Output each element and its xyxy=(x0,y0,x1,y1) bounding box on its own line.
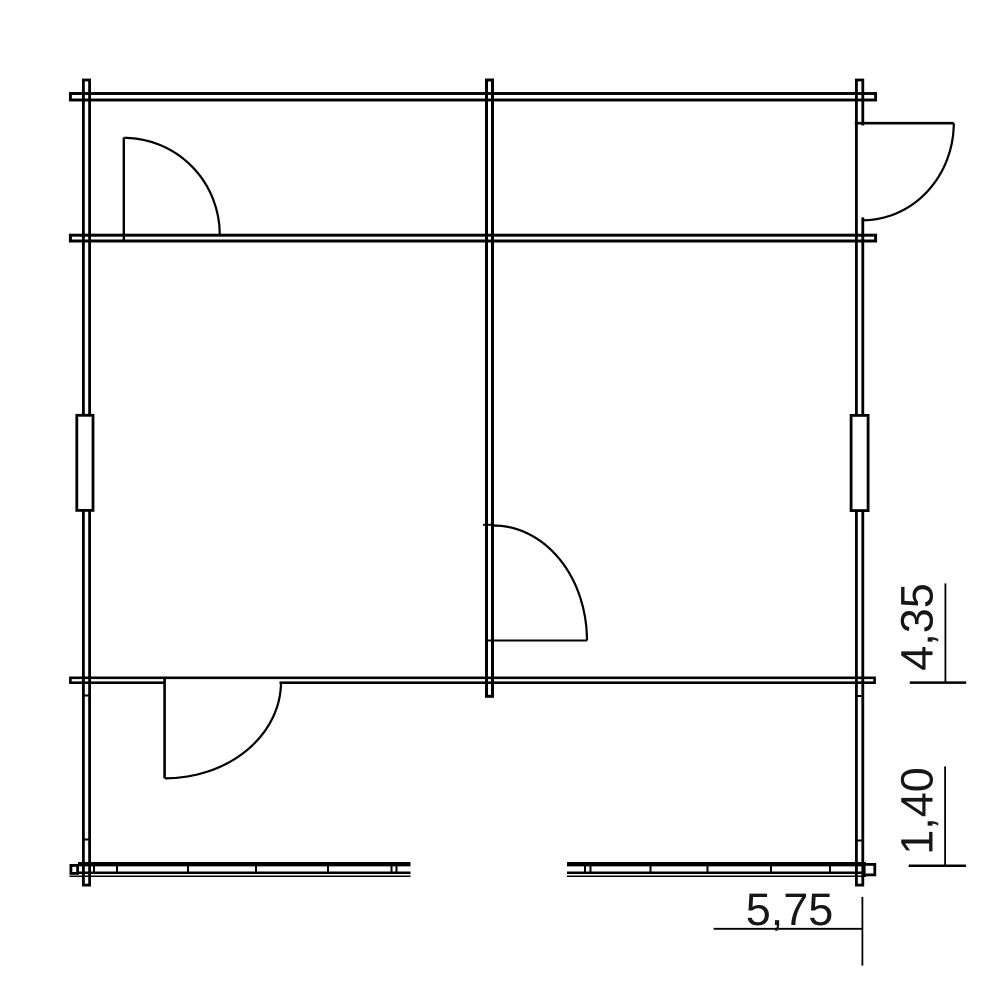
svg-text:4,35: 4,35 xyxy=(892,583,943,671)
svg-text:1,40: 1,40 xyxy=(892,767,943,855)
svg-text:5,75: 5,75 xyxy=(746,884,834,935)
